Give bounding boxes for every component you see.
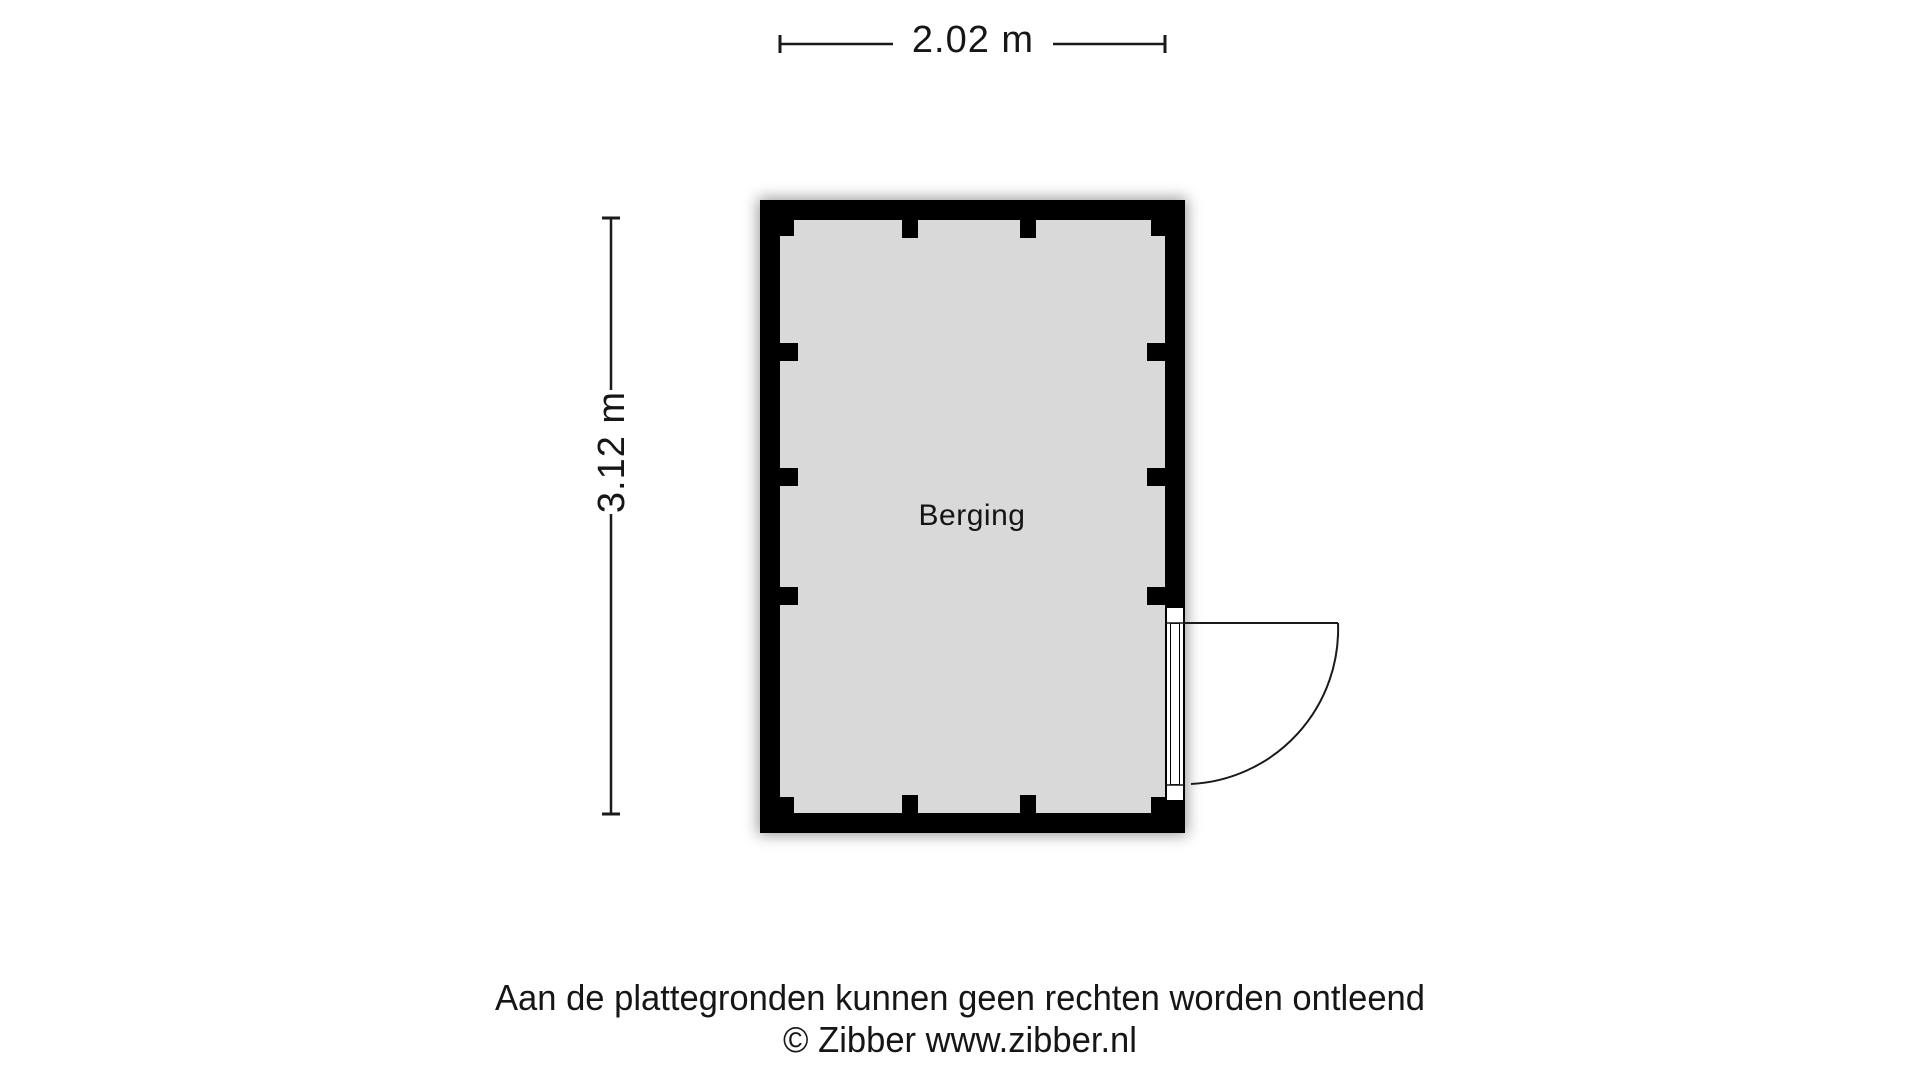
wall-right-below-door xyxy=(1165,800,1185,833)
stud-right-2 xyxy=(1147,468,1165,486)
stud-top-1 xyxy=(902,220,918,238)
door-swing xyxy=(1166,623,1338,785)
wall-left xyxy=(760,200,780,833)
wall-top xyxy=(760,200,1185,220)
width-dimension-label: 2.02 m xyxy=(823,19,1123,61)
stud-right-1 xyxy=(1147,343,1165,361)
footer-disclaimer: Aan de plattegronden kunnen geen rechten… xyxy=(38,979,1881,1017)
stud-left-1 xyxy=(780,343,798,361)
corner-stud-top-left xyxy=(780,220,794,236)
stud-bottom-2 xyxy=(1020,795,1036,813)
stud-left-2 xyxy=(780,468,798,486)
wall-right-above-door xyxy=(1165,200,1185,608)
stud-top-2 xyxy=(1020,220,1036,238)
corner-stud-bottom-right xyxy=(1151,797,1165,813)
door-panel xyxy=(1170,623,1180,785)
floorplan-page: Berging 2.02 m 3.12 m Aan de plattegrond… xyxy=(0,0,1920,1080)
stud-bottom-1 xyxy=(902,795,918,813)
room-label: Berging xyxy=(822,497,1122,535)
corner-stud-bottom-left xyxy=(780,797,794,813)
corner-stud-top-right xyxy=(1151,220,1165,236)
stud-right-3 xyxy=(1147,587,1165,605)
footer-copyright: © Zibber www.zibber.nl xyxy=(38,1021,1881,1059)
stud-left-3 xyxy=(780,587,798,605)
height-dimension-label: 3.12 m xyxy=(591,302,633,602)
wall-bottom xyxy=(760,813,1185,833)
